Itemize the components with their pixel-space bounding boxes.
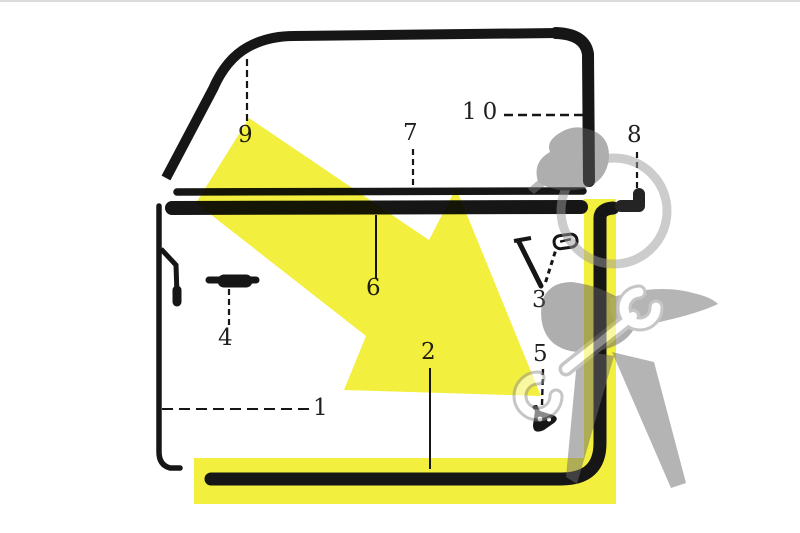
figure-leg-right xyxy=(612,352,686,488)
figure-head-icon xyxy=(537,127,610,190)
watermark-logo xyxy=(0,2,800,533)
parts-diagram: 1 2 3 4 5 6 7 8 9 10 xyxy=(0,0,800,533)
